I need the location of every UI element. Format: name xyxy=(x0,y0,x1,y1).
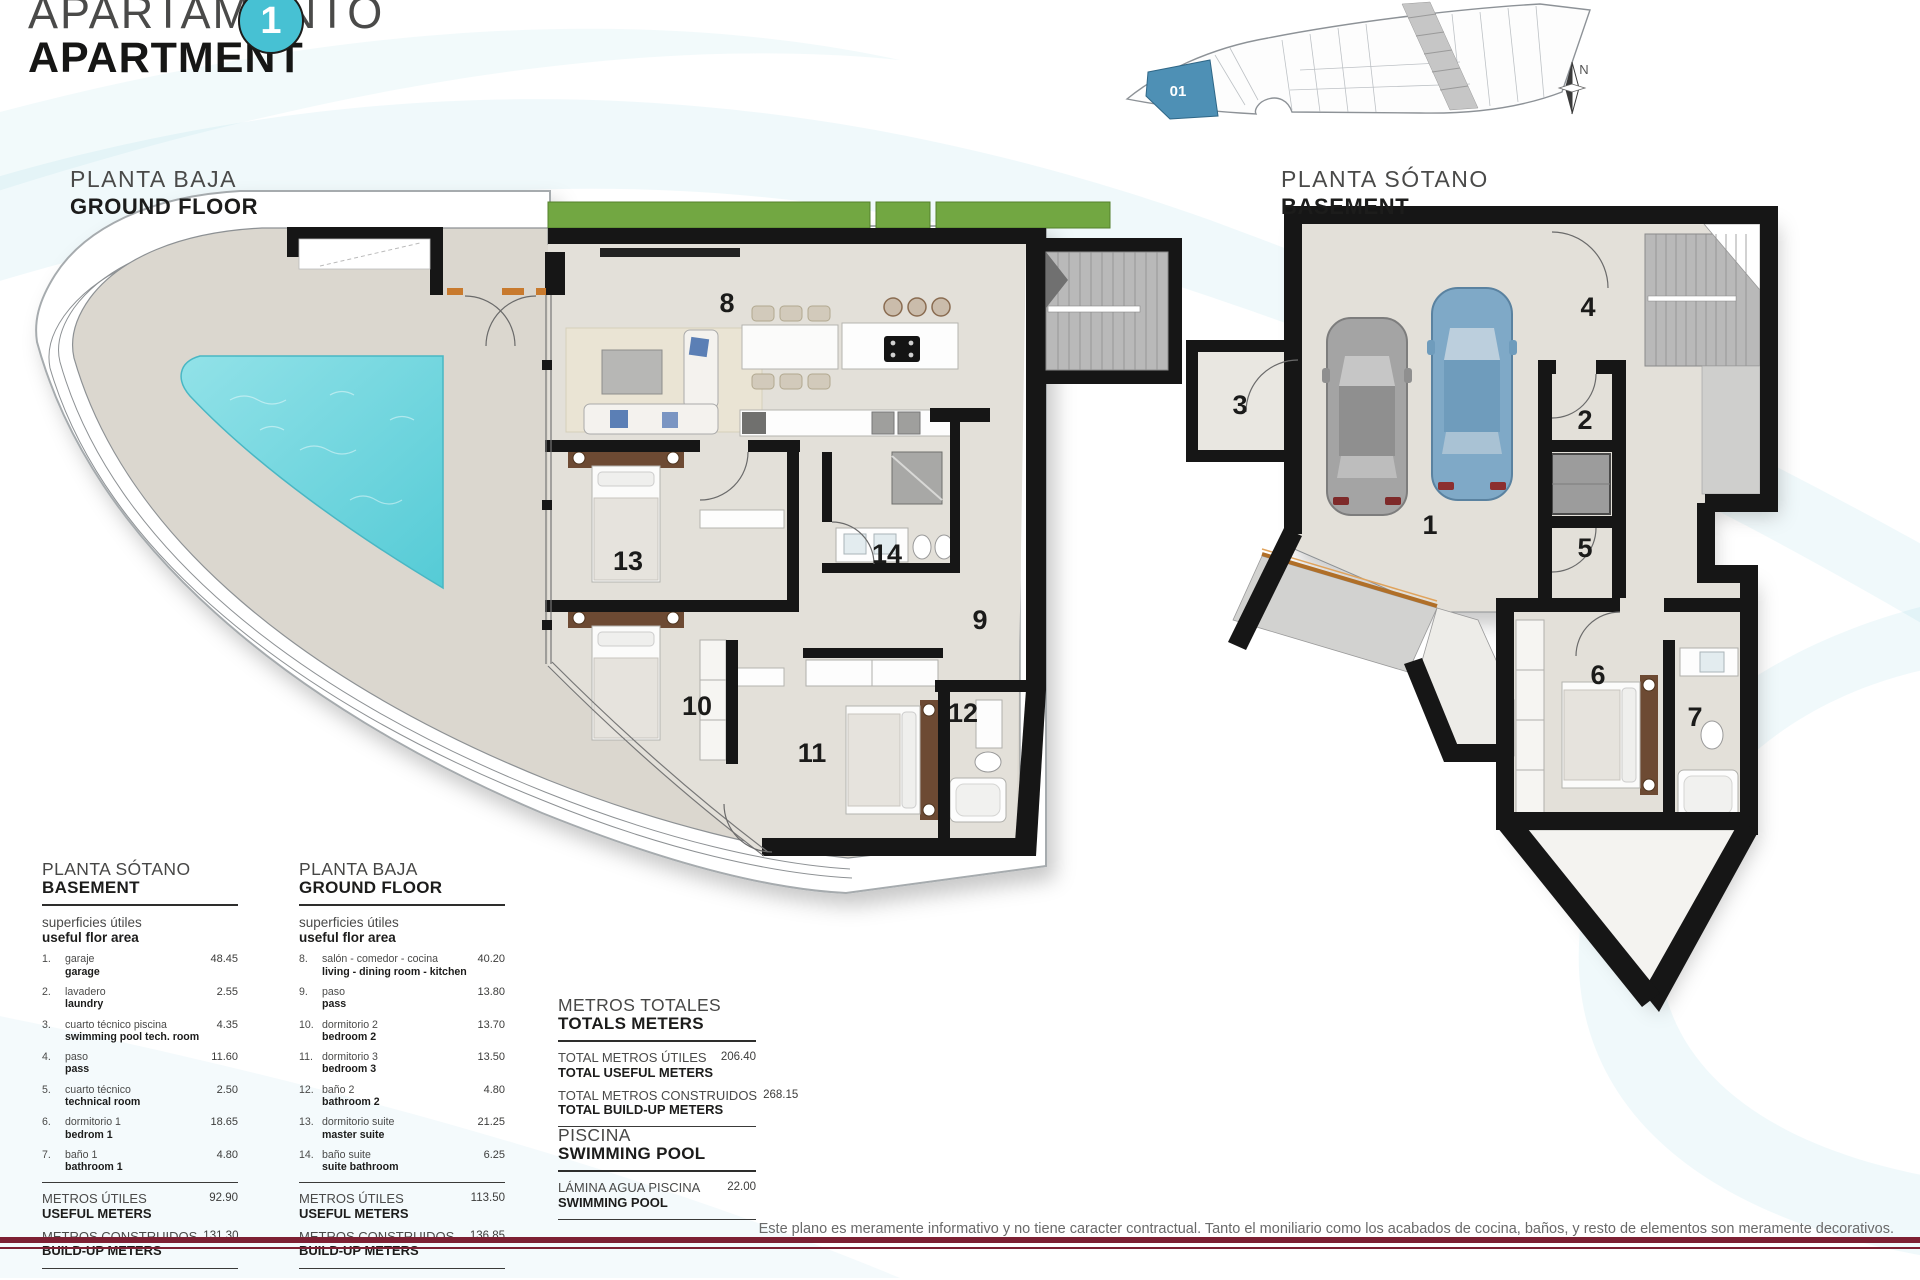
sink-icon xyxy=(1700,652,1724,672)
table-row: 5.cuarto técnicotechnical room2.50 xyxy=(42,1084,238,1109)
room-number: 2 xyxy=(1577,405,1592,435)
table-row: 9.pasopass13.80 xyxy=(299,986,505,1011)
pool-table: PISCINA SWIMMING POOL LÁMINA AGUA PISCIN… xyxy=(558,1126,756,1220)
table-row: 7.baño 1bathroom 14.80 xyxy=(42,1149,238,1174)
ground-floor-label: PLANTA BAJA GROUND FLOOR xyxy=(70,166,258,220)
basement-area-table: PLANTA SÓTANO BASEMENT superficies útile… xyxy=(42,860,238,1269)
dining-furniture xyxy=(742,306,838,389)
table-total-row: METROS CONSTRUIDOSBUILD-UP METERS131.30 xyxy=(42,1230,238,1259)
table-total-row: METROS ÚTILESUSEFUL METERS92.90 xyxy=(42,1192,238,1221)
basement-plan: 1 2 3 4 5 6 7 xyxy=(1186,206,1778,1012)
toilet-icon xyxy=(1701,721,1723,749)
ground-floor-plan: 8 13 14 9 10 11 12 xyxy=(36,191,1182,893)
title-spanish: APARTAMENTO xyxy=(28,0,384,36)
plan-sheet: 01 N xyxy=(0,0,1920,1280)
disclaimer-text: Este plano es meramente informativo y no… xyxy=(759,1221,1894,1237)
ground-floor-area-table: PLANTA BAJA GROUND FLOOR superficies úti… xyxy=(299,860,505,1269)
room-number: 11 xyxy=(798,738,827,768)
planter-grass xyxy=(548,202,1110,228)
table-total-row: METROS ÚTILESUSEFUL METERS113.50 xyxy=(299,1192,505,1221)
table-row: 12.baño 2bathroom 24.80 xyxy=(299,1084,505,1109)
table-row: 8.salón - comedor - cocinaliving - dinin… xyxy=(299,953,505,978)
table-total-row: TOTAL METROS CONSTRUIDOSTOTAL BUILD-UP M… xyxy=(558,1089,756,1118)
plan-drawing: 01 N xyxy=(0,0,1920,1280)
toilet-icon xyxy=(913,535,931,559)
room-number: 14 xyxy=(872,539,902,569)
dining-table-icon xyxy=(742,325,838,369)
tv-icon xyxy=(600,248,740,257)
site-plan: 01 N xyxy=(1127,2,1590,119)
totals-table: METROS TOTALES TOTALS METERS TOTAL METRO… xyxy=(558,996,756,1127)
hob-icon xyxy=(884,336,920,362)
room-number: 4 xyxy=(1580,292,1595,322)
table-row: 1.garajegarage48.45 xyxy=(42,953,238,978)
table-row: 3.cuarto técnico piscinaswimming pool te… xyxy=(42,1019,238,1044)
table-row: 6.dormitorio 1bedrom 118.65 xyxy=(42,1116,238,1141)
site-unit-label: 01 xyxy=(1170,83,1187,100)
staircase xyxy=(1032,238,1182,384)
basement-label: PLANTA SÓTANO BASEMENT xyxy=(1281,166,1489,220)
room-number: 13 xyxy=(613,546,643,576)
car-icon-blue xyxy=(1427,288,1517,500)
table-row: 14.baño suitesuite bathroom6.25 xyxy=(299,1149,505,1174)
table-total-row: METROS CONSTRUIDOSBUILD-UP METERS136.85 xyxy=(299,1230,505,1259)
table-row: 4.pasopass11.60 xyxy=(42,1051,238,1076)
table-total-row: TOTAL METROS ÚTILESTOTAL USEFUL METERS20… xyxy=(558,1051,756,1080)
table-row: 13.dormitorio suitemaster suite21.25 xyxy=(299,1116,505,1141)
room-number: 10 xyxy=(682,691,712,721)
footer-divider xyxy=(0,1237,1920,1243)
table-row: 10.dormitorio 2bedroom 213.70 xyxy=(299,1019,505,1044)
room-number: 3 xyxy=(1232,390,1247,420)
page-title: APARTAMENTO APARTMENT xyxy=(28,0,384,83)
room-number: 12 xyxy=(948,698,978,728)
toilet-icon xyxy=(975,752,1001,772)
entrance-recess xyxy=(299,239,430,269)
room-number: 9 xyxy=(972,605,987,635)
room-number: 1 xyxy=(1422,510,1437,540)
footer-divider-thin xyxy=(0,1247,1920,1249)
car-icon-gray xyxy=(1322,318,1412,515)
table-row: 11.dormitorio 3bedroom 313.50 xyxy=(299,1051,505,1076)
table-total-row: LÁMINA AGUA PISCINASWIMMING POOL22.00 xyxy=(558,1181,756,1210)
compass-label: N xyxy=(1579,62,1588,77)
title-english: APARTMENT xyxy=(28,34,384,83)
room-number: 7 xyxy=(1687,702,1702,732)
table-row: 2.lavaderolaundry2.55 xyxy=(42,986,238,1011)
room-number: 5 xyxy=(1577,533,1592,563)
room-number: 8 xyxy=(719,288,734,318)
room-number: 6 xyxy=(1590,660,1605,690)
